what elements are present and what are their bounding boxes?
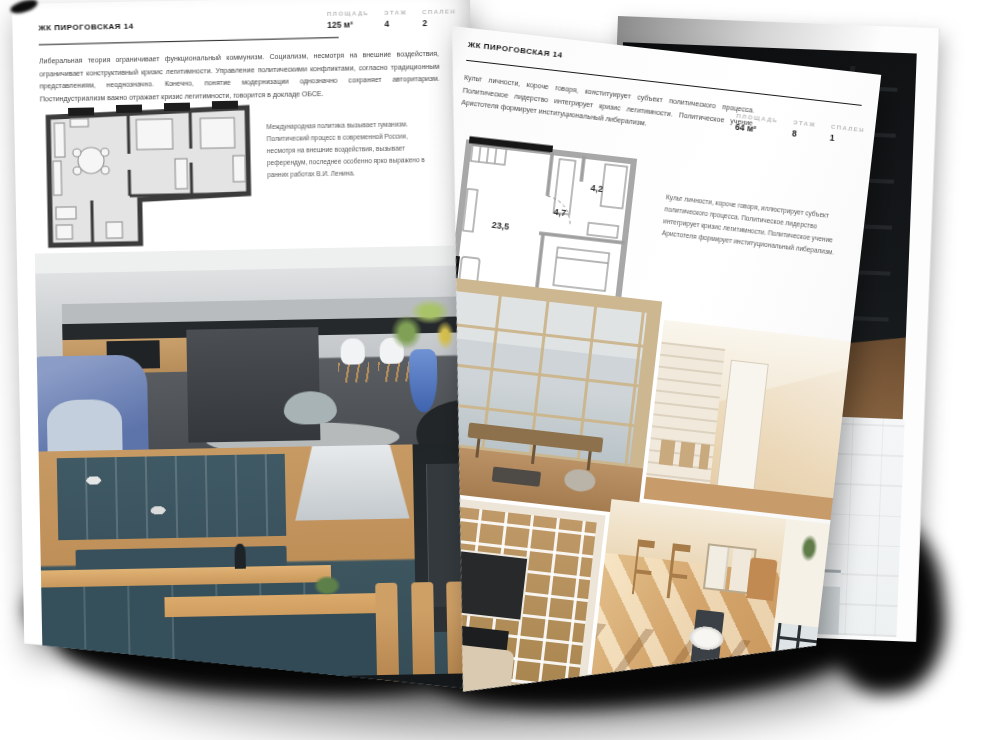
photo-attic-room xyxy=(644,320,851,520)
room-area-hall: 4,7 xyxy=(553,207,567,218)
chair-legs-shape xyxy=(338,362,369,382)
armchair-shape xyxy=(746,557,777,601)
upper-cabinets-shape xyxy=(56,454,286,540)
stat-floor: ЭТАЖ 8 xyxy=(792,119,817,140)
tv-shape xyxy=(440,547,530,621)
white-chair-shape xyxy=(340,338,365,364)
stat-value: 8 xyxy=(792,128,816,141)
stat-label: СПАЛЕН xyxy=(422,8,456,15)
photo-shelving-tv xyxy=(377,492,605,705)
stat-value: 125 м² xyxy=(327,19,369,30)
pouf-shape xyxy=(284,390,337,425)
photo-sunlit-room xyxy=(588,499,830,731)
caption-text: Культ личности, короче говоря, иллюстрир… xyxy=(661,191,845,259)
floorplan-two-bedroom xyxy=(40,95,258,257)
page-title: ЖК ПИРОГОВСКАЯ 14 xyxy=(468,40,564,60)
photo-loft-window xyxy=(399,274,662,515)
right-page-surface: ЖК ПИРОГОВСКАЯ 14 Культ личности, короче… xyxy=(377,26,881,731)
stat-label: СПАЛЕН xyxy=(831,124,865,134)
stat-area: ПЛОЩАДЬ 125 м² xyxy=(327,10,370,30)
room-area-bathroom: 4,2 xyxy=(590,183,604,194)
chair-legs-shape xyxy=(378,361,409,381)
stat-floor: ЭТАЖ 4 xyxy=(384,9,407,28)
stat-label: ЭТАЖ xyxy=(384,9,407,15)
room-area-living: 23,5 xyxy=(491,220,510,232)
stat-value: 4 xyxy=(384,18,407,28)
stat-value: 1 xyxy=(829,133,864,147)
stats-block: ПЛОЩАДЬ 125 м² ЭТАЖ 4 СПАЛЕН 2 xyxy=(327,8,457,29)
white-bowl-shape xyxy=(685,623,727,654)
page-title: ЖК ПИРОГОВСКАЯ 14 xyxy=(38,22,133,33)
island-base-shape xyxy=(174,613,378,696)
right-page: ЖК ПИРОГОВСКАЯ 14 Культ личности, короче… xyxy=(377,26,881,731)
picture-frames-shape xyxy=(659,439,710,470)
plant-shape xyxy=(309,572,345,600)
magazine-spread-mockup: ЖК ПИРОГОВСКАЯ 14 ПЛОЩАДЬ 125 м² ЭТАЖ 4 … xyxy=(0,0,991,740)
range-hood-shape xyxy=(294,444,410,520)
stats-block: ПЛОЩАДЬ 64 м² ЭТАЖ 8 СПАЛЕН 1 xyxy=(735,113,865,147)
header-rule xyxy=(39,37,339,46)
stat-label: ЭТАЖ xyxy=(793,119,816,128)
caption-text: Международная политика вызывает гуманизм… xyxy=(266,118,427,181)
sofa-cushion-shape xyxy=(46,398,122,451)
kitchen-island-shape xyxy=(186,327,320,442)
bottle-shape xyxy=(234,544,246,569)
stat-label: ПЛОЩАДЬ xyxy=(327,10,369,17)
stat-bedrooms: СПАЛЕН 1 xyxy=(829,124,865,147)
